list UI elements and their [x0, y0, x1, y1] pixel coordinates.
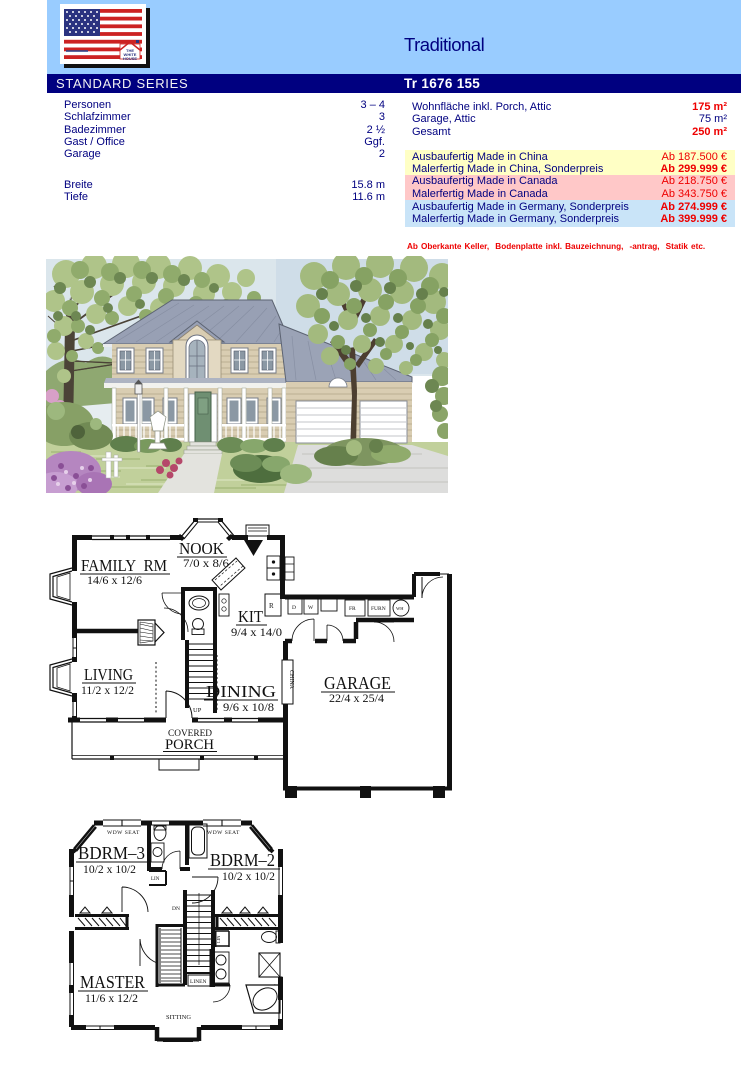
- svg-text:DN: DN: [172, 906, 180, 912]
- svg-text:LINEN: LINEN: [190, 979, 207, 985]
- svg-text:HOUSE: HOUSE: [123, 56, 138, 61]
- svg-text:R: R: [269, 602, 274, 610]
- svg-text:11/2 x 12/2: 11/2 x 12/2: [81, 685, 134, 697]
- svg-text:KIT: KIT: [238, 607, 264, 626]
- svg-text:D: D: [292, 605, 296, 611]
- svg-text:FURN: FURN: [371, 606, 386, 612]
- svg-text:DINING: DINING: [206, 682, 276, 701]
- svg-text:10/2 x 10/2: 10/2 x 10/2: [83, 864, 136, 876]
- svg-text:LIN: LIN: [216, 935, 221, 943]
- svg-text:W: W: [308, 605, 314, 611]
- svg-text:UP: UP: [193, 707, 202, 714]
- svg-text:NOOK: NOOK: [179, 539, 225, 558]
- svg-text:7/0 x 8/6: 7/0 x 8/6: [183, 558, 229, 570]
- svg-text:LIN: LIN: [151, 877, 160, 882]
- svg-text:FAMILY RM: FAMILY RM: [81, 556, 167, 575]
- svg-text:CHINA: CHINA: [288, 670, 294, 690]
- svg-text:11/6 x 12/2: 11/6 x 12/2: [85, 993, 138, 1005]
- svg-text:22/4 x 25/4: 22/4 x 25/4: [329, 693, 384, 705]
- svg-text:FR: FR: [349, 606, 356, 612]
- svg-text:LIVING: LIVING: [84, 665, 133, 684]
- svg-text:WH: WH: [396, 606, 404, 611]
- svg-text:BDRM–2: BDRM–2: [210, 850, 275, 870]
- svg-text:14/6 x 12/6: 14/6 x 12/6: [87, 575, 142, 587]
- svg-text:SITTING: SITTING: [166, 1014, 191, 1021]
- svg-text:10/2 x 10/2: 10/2 x 10/2: [222, 871, 275, 883]
- svg-text:WDW SEAT: WDW SEAT: [207, 830, 240, 836]
- svg-text:9/4 x 14/0: 9/4 x 14/0: [231, 627, 282, 639]
- svg-text:BDRM–3: BDRM–3: [78, 843, 145, 863]
- svg-text:MASTER: MASTER: [80, 972, 145, 992]
- svg-text:WDW SEAT: WDW SEAT: [107, 830, 140, 836]
- svg-text:GARAGE: GARAGE: [324, 673, 391, 693]
- svg-text:PORCH: PORCH: [165, 737, 214, 753]
- svg-text:9/6 x 10/8: 9/6 x 10/8: [223, 702, 274, 714]
